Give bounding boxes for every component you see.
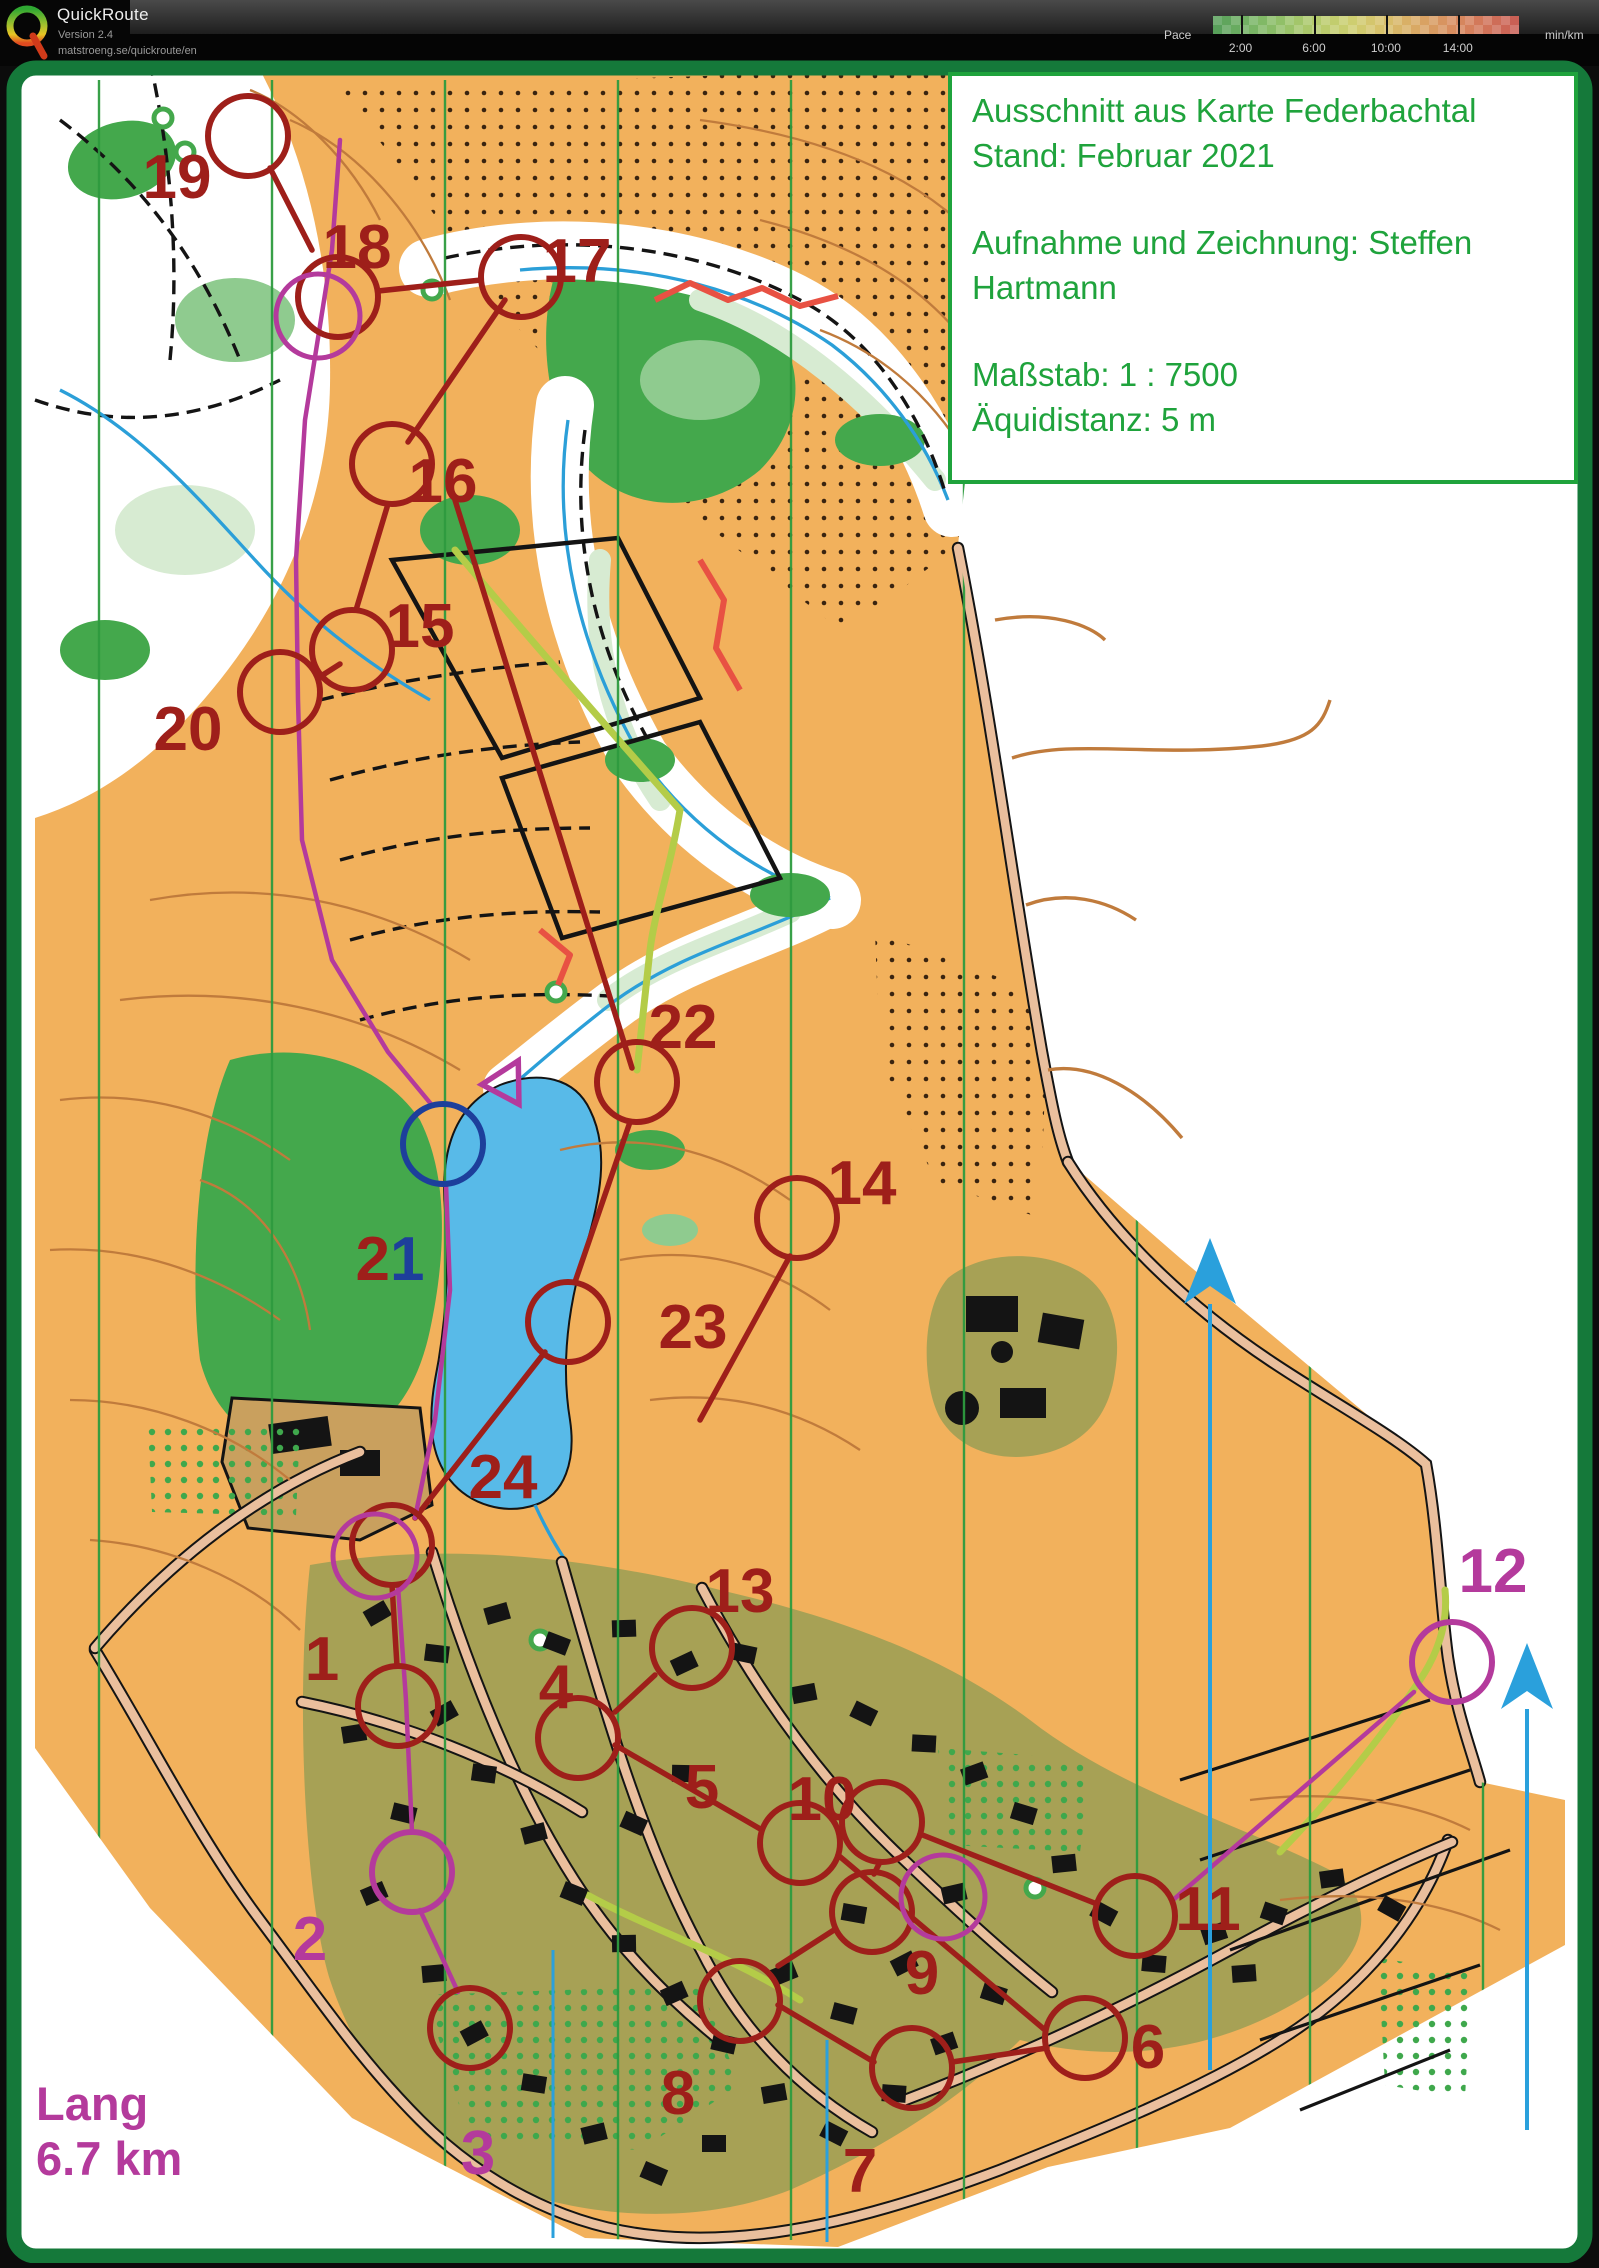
info-box-line: Aufnahme und Zeichnung: Steffen (972, 220, 1554, 265)
building (966, 1296, 1018, 1332)
building (612, 1935, 636, 1952)
orchard (1378, 1958, 1472, 2098)
forest-patch (642, 1214, 698, 1246)
building (471, 1763, 497, 1783)
info-box-blank-line (972, 178, 1554, 220)
orchard (938, 1748, 1092, 1852)
control-number-22: 22 (649, 993, 718, 1062)
control-number-5: 5 (685, 1753, 719, 1822)
farm-compound (927, 1256, 1117, 1457)
control-number-23: 23 (659, 1293, 728, 1362)
building (702, 2135, 726, 2152)
control-number-6: 6 (1131, 2013, 1165, 2082)
control-number-4: 4 (539, 1653, 574, 1722)
info-box-line: Äquidistanz: 5 m (972, 397, 1554, 442)
info-box-line: Ausschnitt aus Karte Federbachtal (972, 88, 1554, 133)
control-number-21: 21 (356, 1225, 425, 1294)
info-box-line: Maßstab: 1 : 7500 (972, 352, 1554, 397)
control-number-8: 8 (661, 2059, 695, 2128)
tank (945, 1391, 979, 1425)
forest-patch (115, 485, 255, 575)
building (421, 1964, 446, 1983)
forest-patch (640, 340, 760, 420)
control-number-1: 1 (305, 1625, 339, 1694)
control-number-14: 14 (828, 1149, 897, 1218)
building (1231, 1964, 1256, 1983)
building (1000, 1388, 1046, 1418)
building (612, 1620, 637, 1638)
map-canvas[interactable]: 123456789101112131415161718192021222324 … (0, 0, 1599, 2263)
forest-patch (835, 414, 925, 466)
building (912, 1734, 937, 1752)
control-number-15: 15 (386, 592, 455, 661)
course-distance: 6.7 km (36, 2131, 182, 2186)
control-number-18: 18 (323, 213, 392, 282)
control-number-3: 3 (461, 2119, 495, 2188)
control-number-20: 20 (154, 695, 223, 764)
control-number-10: 10 (788, 1765, 857, 1834)
tank (991, 1341, 1013, 1363)
map-info-box: Ausschnitt aus Karte FederbachtalStand: … (948, 72, 1578, 484)
control-number-12: 12 (1459, 1537, 1528, 1606)
info-box-blank-line (972, 310, 1554, 352)
info-box-line: Stand: Februar 2021 (972, 133, 1554, 178)
course-name: Lang (36, 2076, 182, 2131)
info-box-line: Hartmann (972, 265, 1554, 310)
control-number-9: 9 (905, 1939, 939, 2008)
control-number-24: 24 (469, 1443, 538, 1512)
control-number-13: 13 (706, 1557, 775, 1626)
building (1051, 1854, 1077, 1873)
control-number-7: 7 (843, 2137, 877, 2206)
course-label: Lang 6.7 km (36, 2076, 182, 2187)
building (1319, 1868, 1345, 1888)
control-number-2: 2 (293, 1905, 327, 1974)
control-number-17: 17 (543, 227, 612, 296)
forest-patch (60, 620, 150, 680)
control-number-19: 19 (143, 143, 212, 212)
control-number-16: 16 (409, 447, 478, 516)
